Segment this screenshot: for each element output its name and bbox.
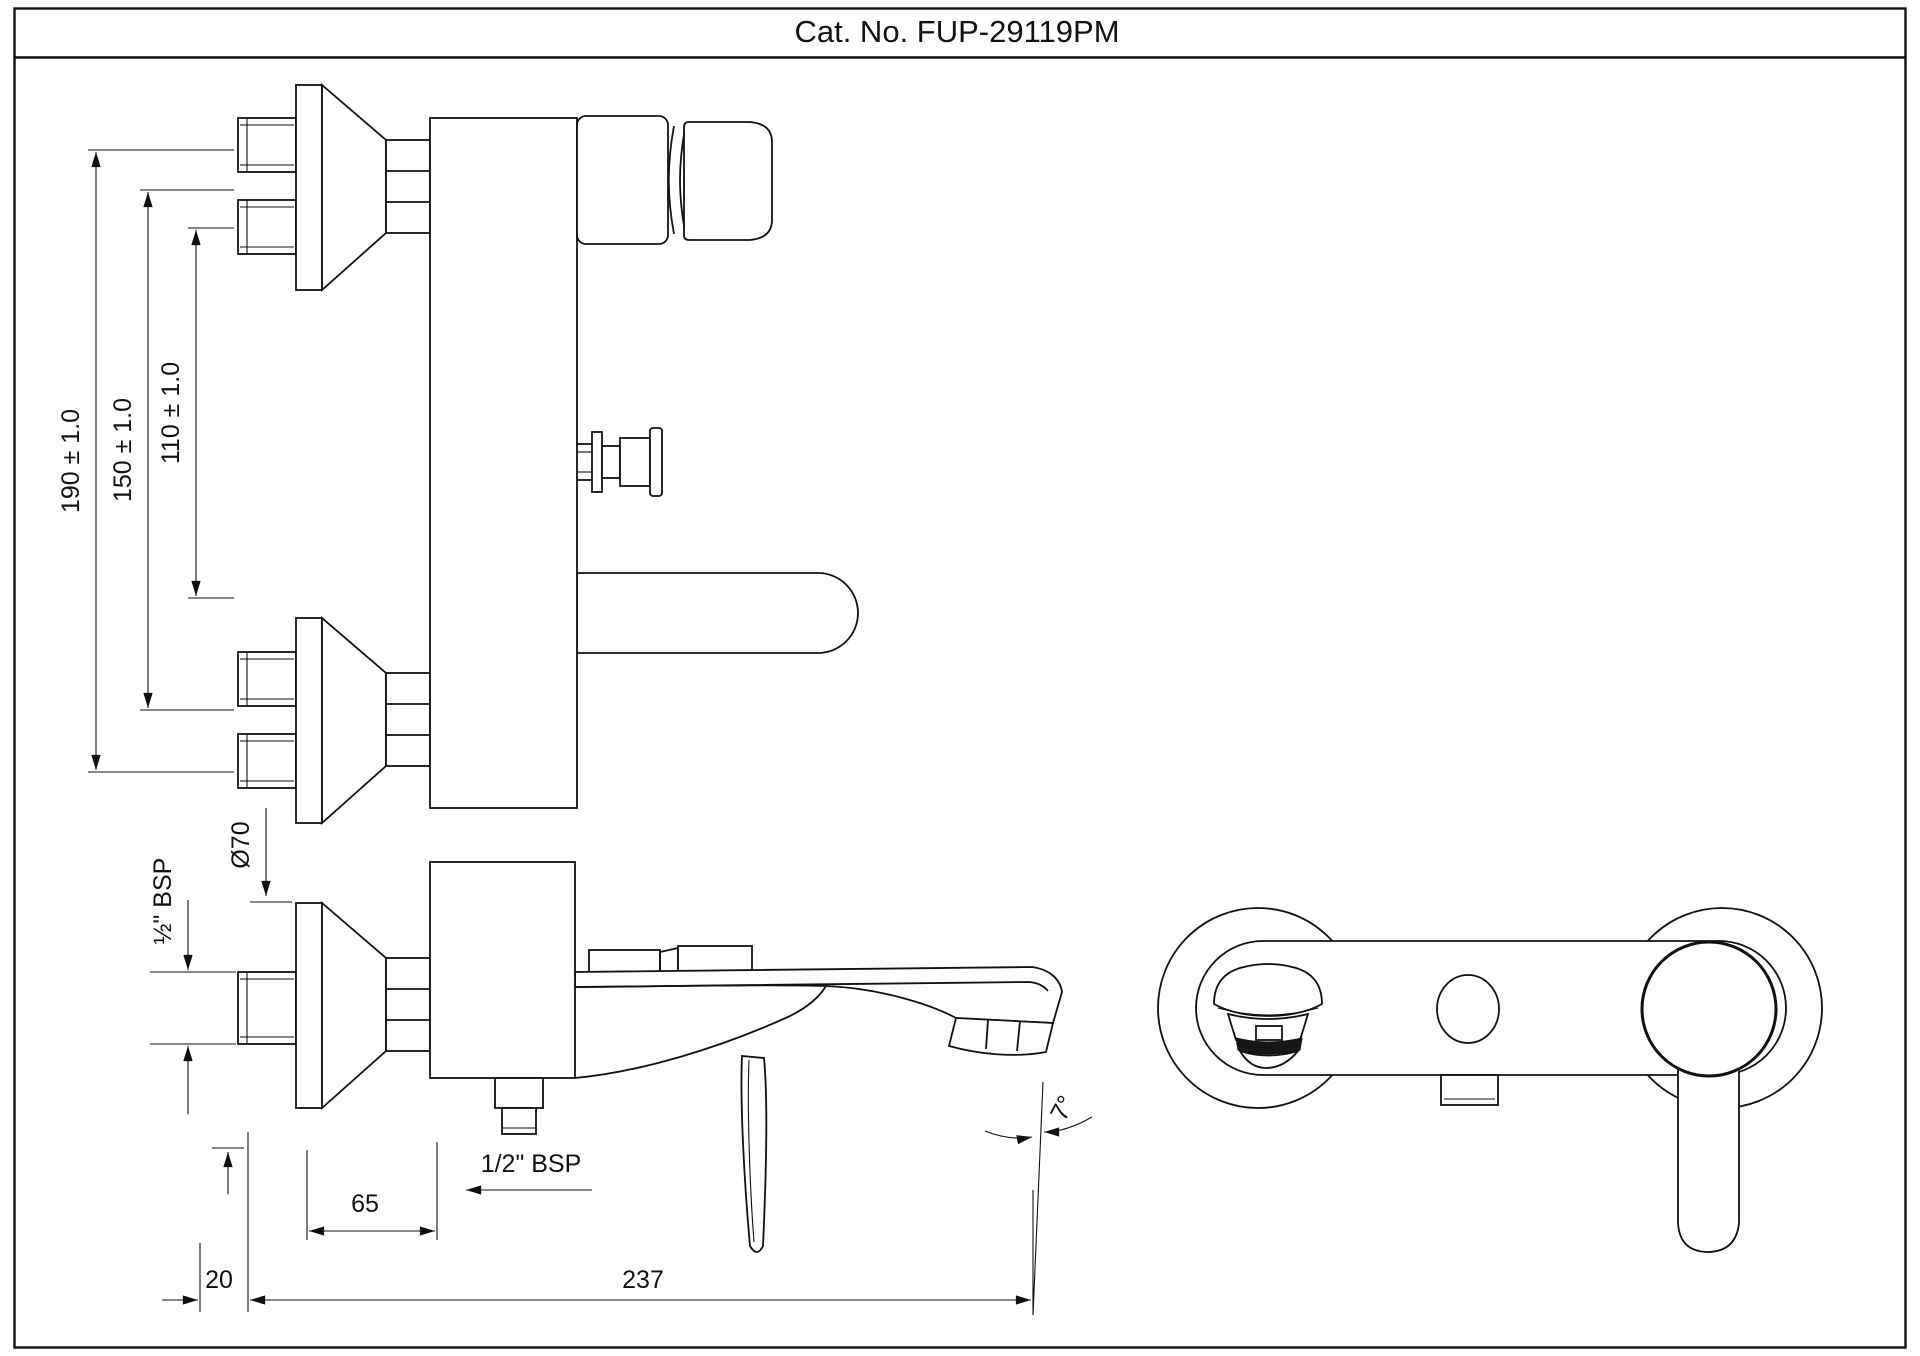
lever-handle [741, 1056, 766, 1252]
dimension-65: 65 [307, 1142, 437, 1240]
handle-base-circle [1642, 942, 1776, 1076]
dimension-20: 20 [162, 1266, 233, 1300]
bottom-dimensions: 20 237 65 1/2" BSP [162, 1132, 1033, 1315]
handle-knob-cylinder [684, 122, 772, 240]
escutcheon-cone [322, 85, 386, 290]
side-profile-view: Ø70 ½" BSP [149, 808, 1092, 1315]
dim-label-190: 190 ± 1.0 [57, 409, 85, 513]
side-elevation-view: 190 ± 1.0 150 ± 1.0 110 ± 1.0 [57, 85, 858, 823]
catalog-number: Cat. No. FUP-29119PM [794, 14, 1119, 49]
inlet-pipe [386, 958, 430, 1051]
handle-shaft [1678, 1050, 1739, 1252]
dim-label-237: 237 [622, 1266, 664, 1294]
bottom-tab [1441, 1075, 1498, 1105]
escutcheon-cone [322, 903, 386, 1108]
dimension-150: 150 ± 1.0 [109, 192, 148, 708]
drawing-canvas: Cat. No. FUP-29119PM 190 ± 1.0 150 ± 1.0… [0, 0, 1920, 1356]
upper-inlet-assembly [238, 85, 430, 290]
cartridge-and-handle [577, 116, 772, 244]
escutcheon-flange [296, 618, 322, 823]
dim-label-110: 110 ± 1.0 [157, 362, 185, 464]
diverter-knob-plan [577, 428, 662, 496]
diverter-cap [650, 428, 662, 496]
dimension-bsp-inlet: ½" BSP [149, 858, 236, 1114]
dim-label-dia70: Ø70 [227, 821, 255, 868]
aerator-tip [949, 1018, 1053, 1055]
spout-underside [575, 986, 826, 1078]
diverter-disc [592, 432, 602, 492]
escutcheon-flange [296, 85, 322, 290]
diverter-outlet [495, 1078, 543, 1134]
nozzle-notch [1256, 1026, 1282, 1040]
diverter-button [1437, 975, 1499, 1043]
tab-body [1441, 1075, 1498, 1105]
diverter-boss [495, 1078, 543, 1108]
dim-label-angle7: 7° [1045, 1091, 1081, 1125]
nozzle-hood [1214, 964, 1322, 1016]
mixer-body [430, 118, 577, 808]
diverter-body [620, 438, 650, 486]
cartridge-housing [577, 116, 668, 244]
dim-label-bsp-spout: 1/2" BSP [481, 1150, 582, 1178]
escutcheon-flange [296, 903, 322, 1108]
drawing-sheet: Cat. No. FUP-29119PM 190 ± 1.0 150 ± 1.0… [0, 0, 1920, 1356]
spout-plan [577, 573, 858, 653]
dim-label-bsp-inlet: ½" BSP [149, 858, 177, 945]
lower-inlet-assembly [238, 618, 430, 823]
mixer-body-profile [430, 862, 575, 1078]
diverter-stem [602, 446, 620, 478]
dimension-190: 190 ± 1.0 [57, 152, 96, 770]
dim-label-20: 20 [205, 1266, 233, 1294]
handle-neck-curve [669, 126, 674, 234]
front-view [1158, 908, 1822, 1252]
inlet-assembly-profile [238, 903, 430, 1108]
dim-label-150: 150 ± 1.0 [109, 398, 137, 502]
dimension-bsp-spout: 1/2" BSP [466, 1150, 592, 1190]
dim-label-65: 65 [351, 1190, 379, 1218]
dimension-237: 237 [250, 1266, 1031, 1300]
escutcheon-cone [322, 618, 386, 823]
inlet-pipe [386, 140, 430, 233]
dimension-dia70: Ø70 [227, 808, 292, 902]
spout-profile [575, 946, 1062, 1078]
dimension-110: 110 ± 1.0 [157, 230, 196, 596]
lever-blade [741, 1056, 766, 1252]
dimension-angle7: 7° [985, 1082, 1092, 1315]
inlet-pipe [386, 673, 430, 766]
diverter-thread [502, 1108, 536, 1134]
